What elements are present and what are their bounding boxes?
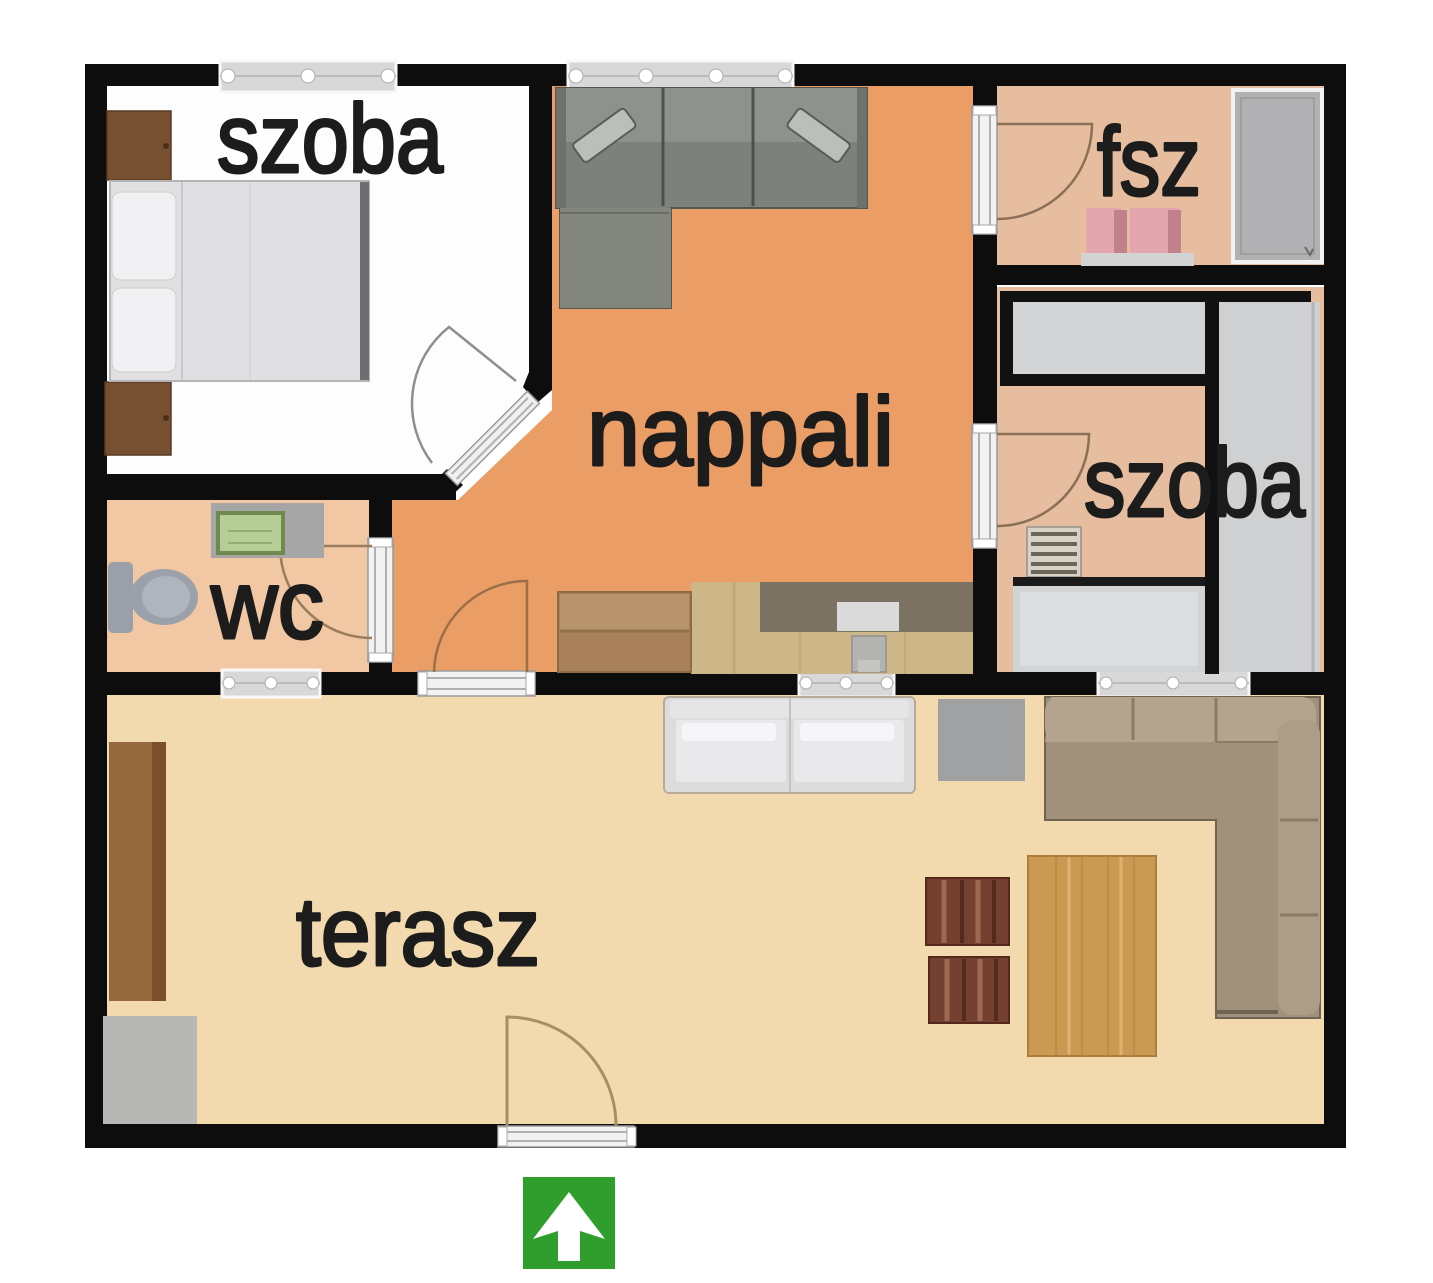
svg-text:szoba: szoba bbox=[217, 84, 443, 193]
svg-text:terasz: terasz bbox=[296, 877, 540, 986]
svg-text:nappali: nappali bbox=[587, 377, 894, 486]
svg-text:szoba: szoba bbox=[1084, 428, 1305, 537]
svg-text:fsz: fsz bbox=[1097, 107, 1201, 216]
svg-text:wc: wc bbox=[210, 550, 324, 659]
